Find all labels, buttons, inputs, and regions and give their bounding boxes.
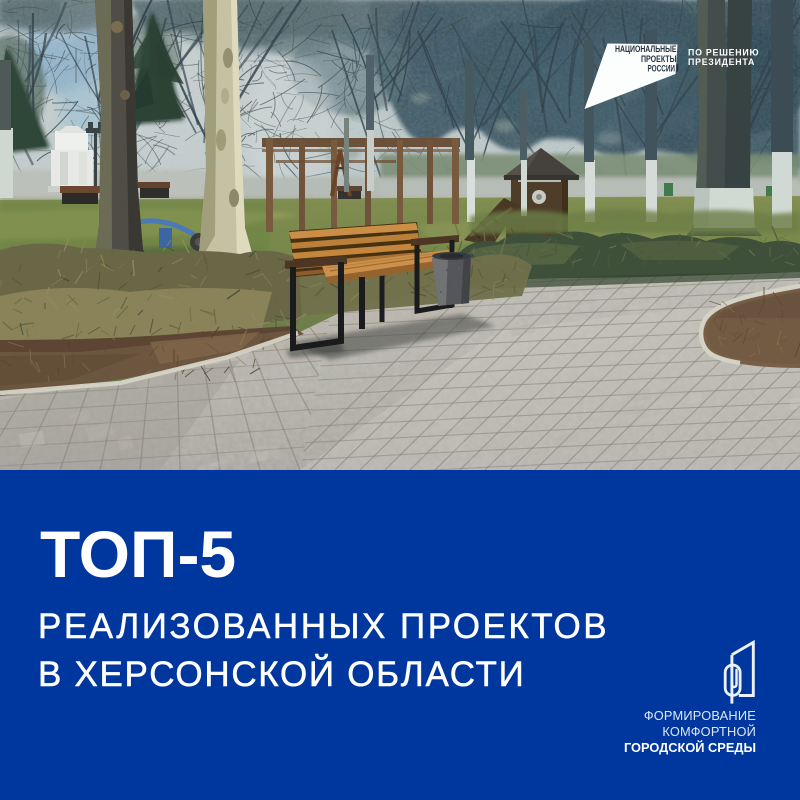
svg-text:ПРОЕКТЫ: ПРОЕКТЫ (641, 54, 677, 64)
svg-text:НАЦИОНАЛЬНЫЕ: НАЦИОНАЛЬНЫЕ (615, 44, 677, 54)
svg-text:ПО РЕШЕНИЮ: ПО РЕШЕНИЮ (688, 47, 759, 57)
svg-text:РОССИИ: РОССИИ (648, 64, 676, 74)
svg-text:ПРЕЗИДЕНТА: ПРЕЗИДЕНТА (688, 57, 755, 67)
